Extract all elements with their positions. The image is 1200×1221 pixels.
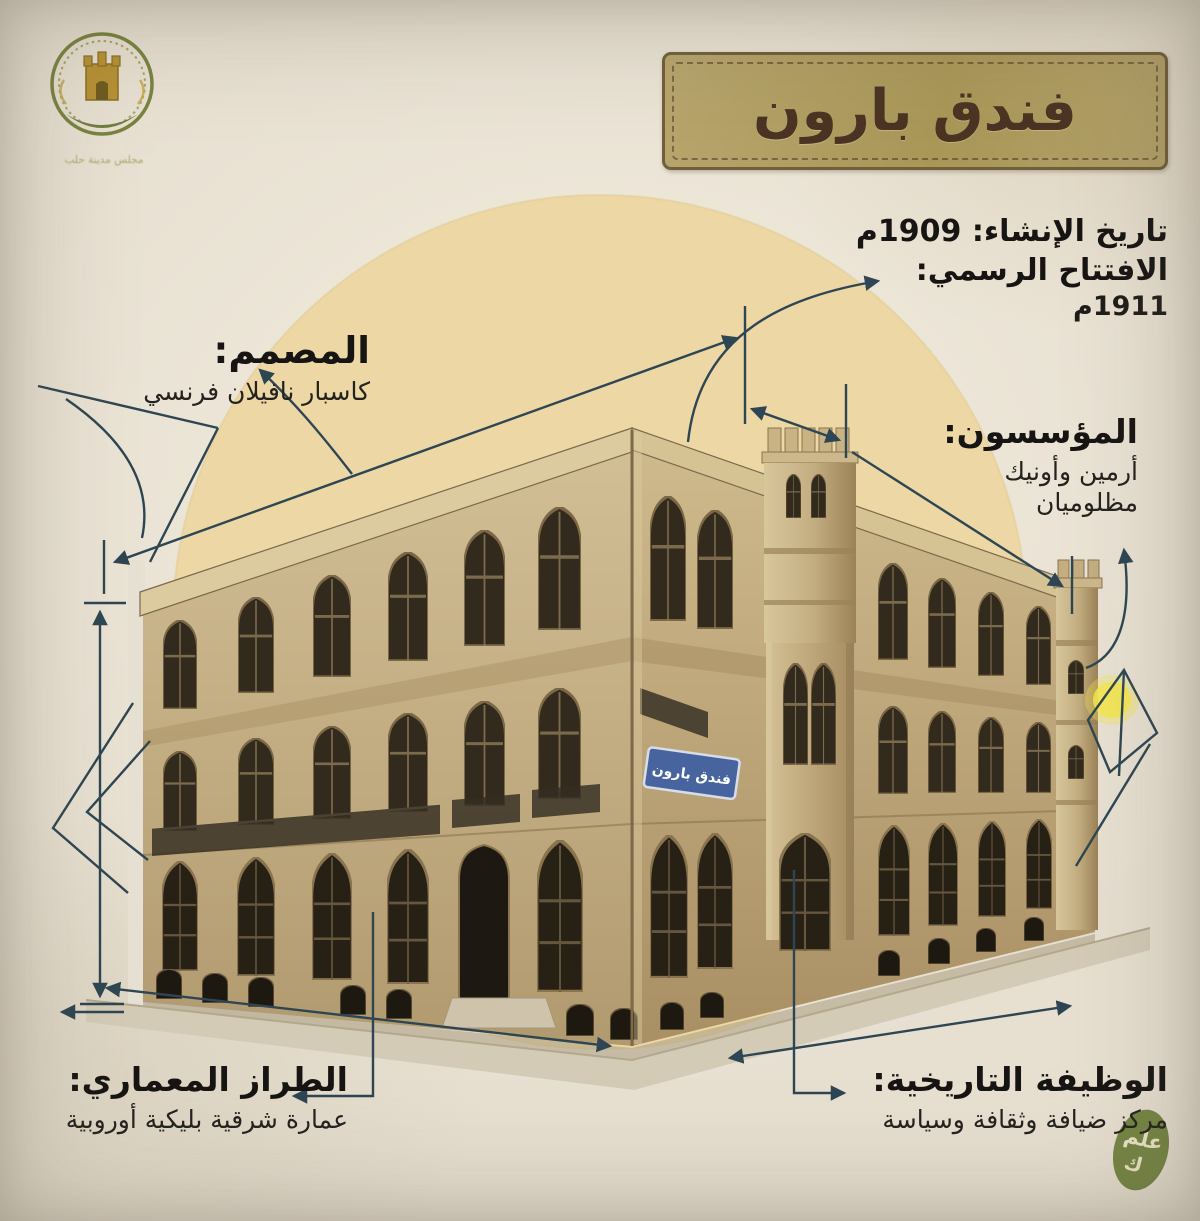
function-title: الوظيفة التاريخية: <box>872 1062 1168 1099</box>
poster-title: فندق بارون <box>753 78 1077 144</box>
founders-block: المؤسسون: أرمين وأونيك مظلوميان <box>943 414 1138 518</box>
style-title: الطراز المعماري: <box>66 1062 348 1099</box>
opening-label: الافتتاح الرسمي: <box>856 251 1168 290</box>
infographic-poster: فندق بارون <box>0 0 1200 1221</box>
construction-date-label: تاريخ الإنشاء: 1909م <box>856 212 1168 251</box>
function-block: الوظيفة التاريخية: مركز ضيافة وثقافة وسي… <box>872 1062 1168 1135</box>
founders-title: المؤسسون: <box>943 414 1138 451</box>
corner-turret <box>762 428 858 951</box>
designer-block: المصمم: كاسبار نافيلان فرنسي <box>143 330 370 407</box>
founders-line1: أرمين وأونيك <box>943 456 1138 487</box>
neighbor-building-sliver <box>128 560 145 1006</box>
illustration-canvas: فندق بارون <box>0 0 1200 1221</box>
logo-box: مجلس مدينة حلب <box>36 22 172 178</box>
opening-year: 1911م <box>856 290 1168 324</box>
designer-text: كاسبار نافيلان فرنسي <box>143 376 370 407</box>
style-block: الطراز المعماري: عمارة شرقية بليكية أورو… <box>66 1062 348 1135</box>
founders-line2: مظلوميان <box>943 487 1138 518</box>
style-text: عمارة شرقية بليكية أوروبية <box>66 1104 348 1135</box>
turret-crenellations <box>768 428 849 454</box>
dates-block: تاريخ الإنشاء: 1909م الافتتاح الرسمي: 19… <box>856 212 1168 324</box>
right-small-turret <box>1054 560 1102 930</box>
height-dimension <box>62 603 126 1012</box>
title-banner: فندق بارون <box>662 52 1168 170</box>
entrance-steps <box>442 998 556 1028</box>
function-text: مركز ضيافة وثقافة وسياسة <box>872 1104 1168 1135</box>
entrance-door <box>459 845 509 1000</box>
logo-caption: مجلس مدينة حلب <box>36 154 172 166</box>
designer-title: المصمم: <box>143 330 370 371</box>
